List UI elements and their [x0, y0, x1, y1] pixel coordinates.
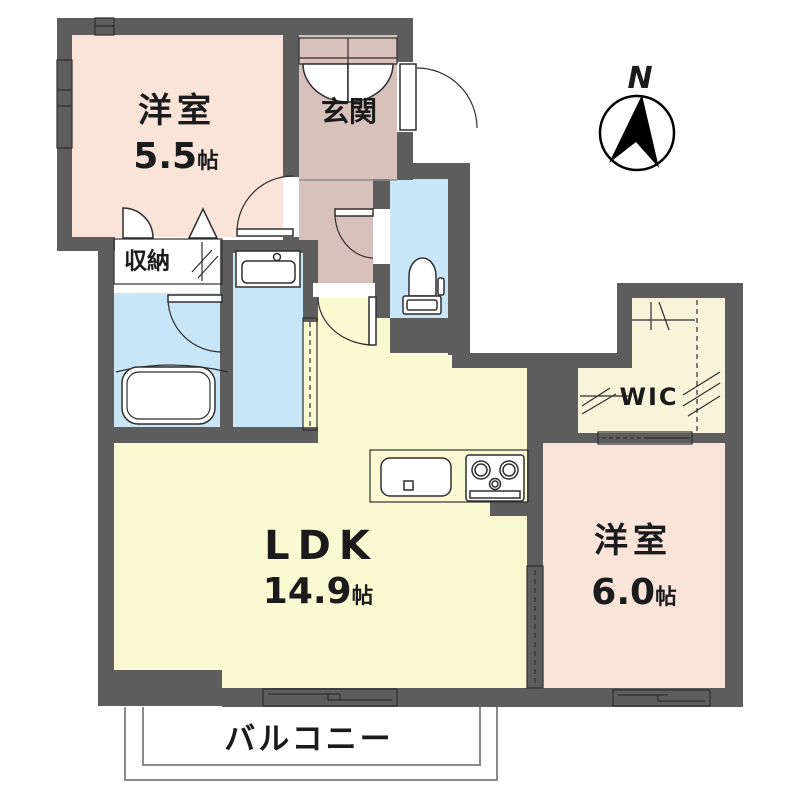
wic-name: WIC [619, 385, 678, 409]
balcony-name: バルコニー [224, 725, 393, 756]
ldk-size: 14.9帖 [263, 574, 373, 610]
floor-plan: 洋室 5.5帖 玄関 収納 LDK 14.9帖 WIC 洋室 6.0帖 バルコニ… [0, 0, 800, 800]
bedroom2-size-unit: 帖 [655, 585, 677, 610]
outside-notch [468, 280, 618, 354]
bedroom1-size-unit: 帖 [197, 149, 219, 174]
wic-floor-a [632, 298, 725, 433]
ldk-name: LDK [264, 526, 378, 566]
storage-name: 収納 [124, 251, 170, 274]
bedroom1-name: 洋室 [138, 94, 216, 128]
bedroom2-floor [543, 443, 725, 690]
bedroom2-name: 洋室 [594, 524, 672, 558]
stove-icon [466, 455, 524, 501]
compass-icon [600, 95, 674, 170]
kitchen-sink-icon [381, 458, 451, 496]
bedroom1-size: 5.5帖 [133, 139, 218, 175]
entrance-name: 玄関 [321, 98, 377, 126]
ldk-size-unit: 帖 [352, 584, 374, 609]
floor-plan-drawing [0, 0, 800, 800]
ldk-size-value: 14.9 [263, 571, 352, 612]
bedroom1-size-value: 5.5 [133, 136, 197, 177]
compass-north-label: N [627, 64, 652, 94]
bedroom2-size: 6.0帖 [591, 575, 676, 611]
bedroom2-size-value: 6.0 [591, 572, 655, 613]
bathtub-icon [116, 365, 228, 424]
vanity-sink-icon [236, 251, 300, 287]
front-door [400, 64, 477, 130]
